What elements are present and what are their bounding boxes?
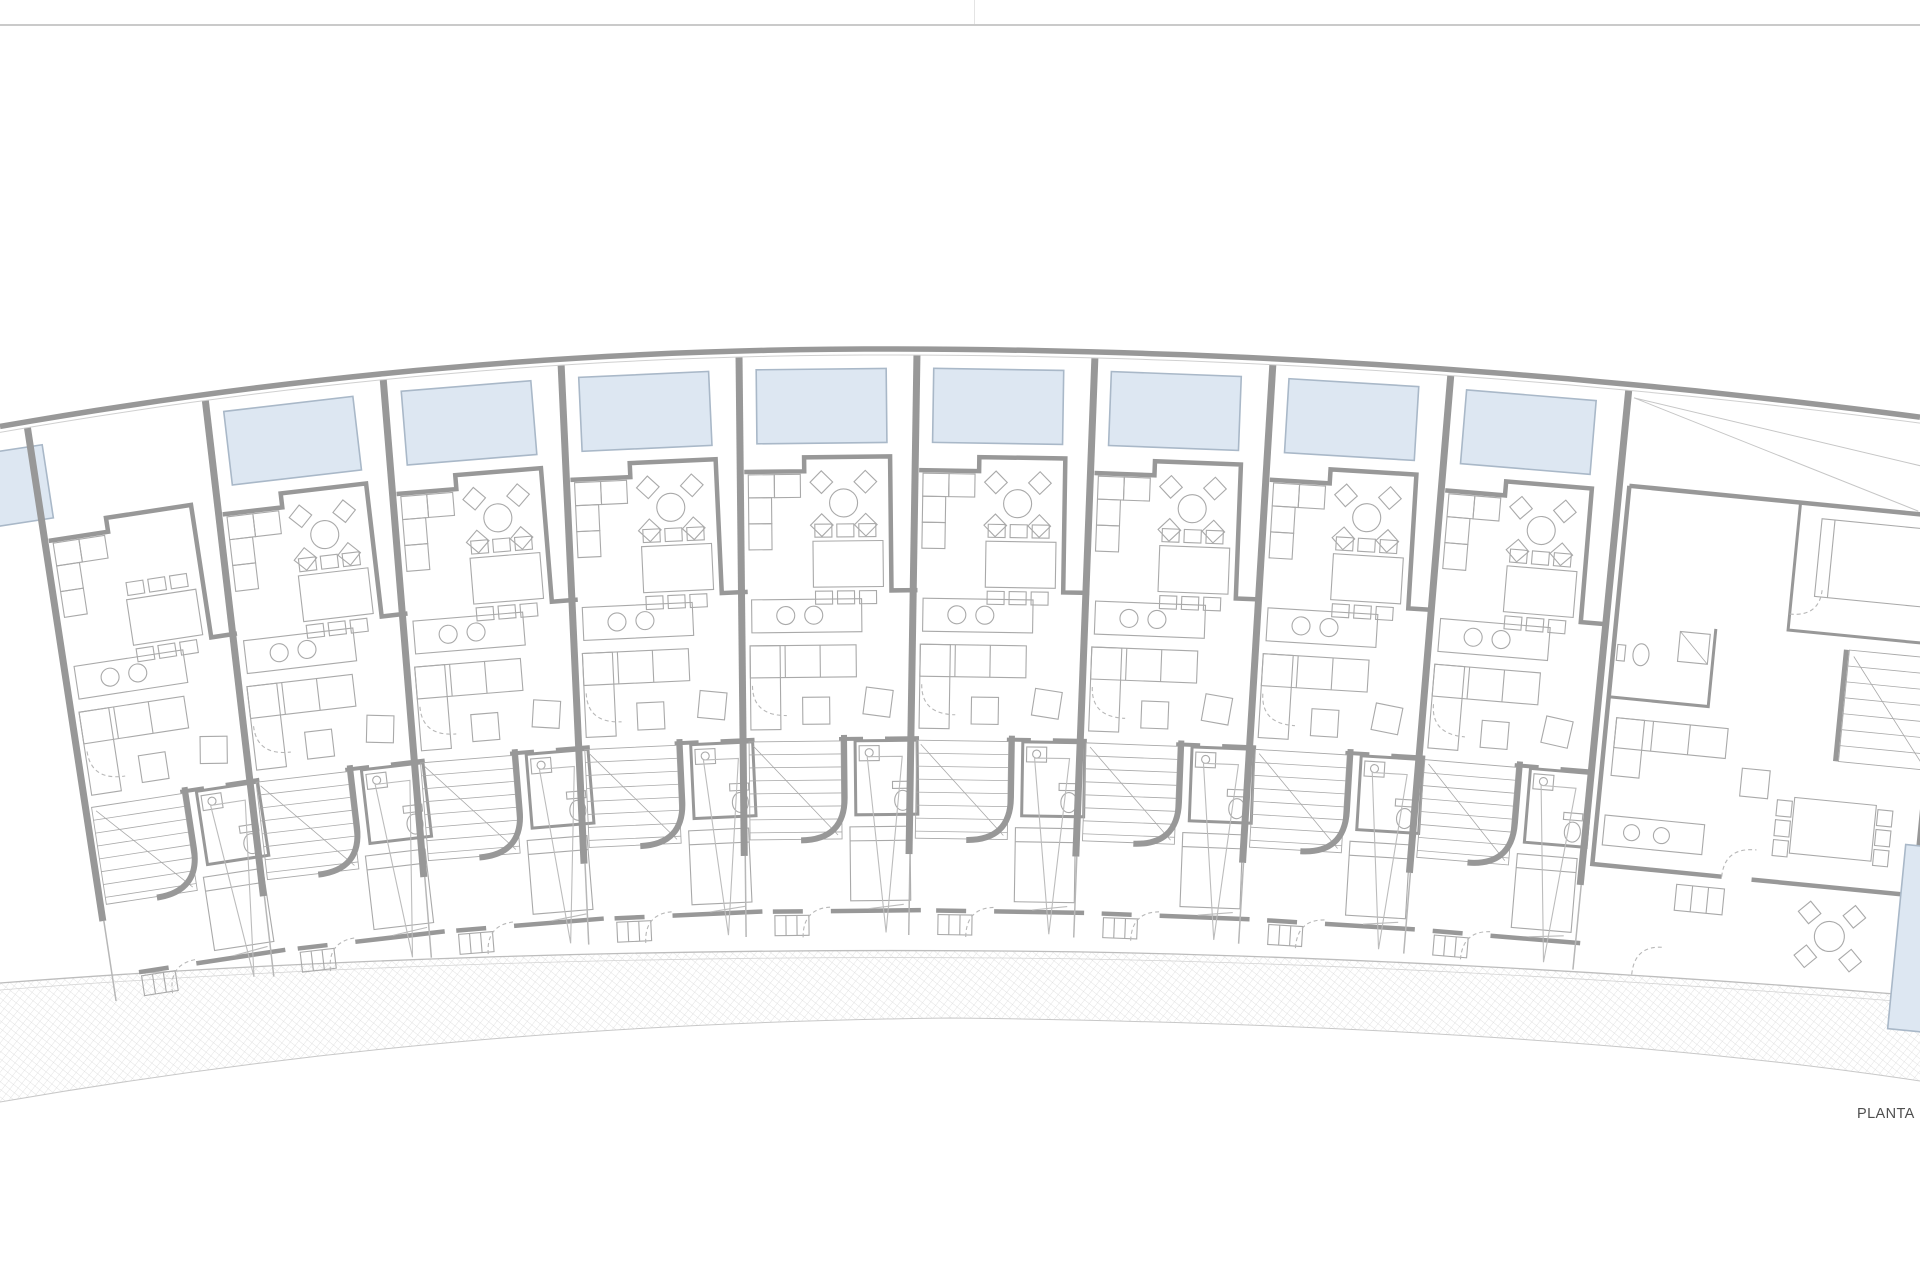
plan-caption: PLANTA xyxy=(1857,1106,1920,1126)
pool xyxy=(756,368,888,537)
pool xyxy=(931,368,1064,537)
corner-house xyxy=(1569,390,1920,1038)
site-plan-drawing xyxy=(0,0,1920,1280)
pool xyxy=(1453,390,1596,568)
row-house xyxy=(27,401,289,1002)
pool xyxy=(1279,379,1419,554)
pool xyxy=(1105,372,1241,544)
floorplan-page: PLANTA xyxy=(0,0,1920,1280)
